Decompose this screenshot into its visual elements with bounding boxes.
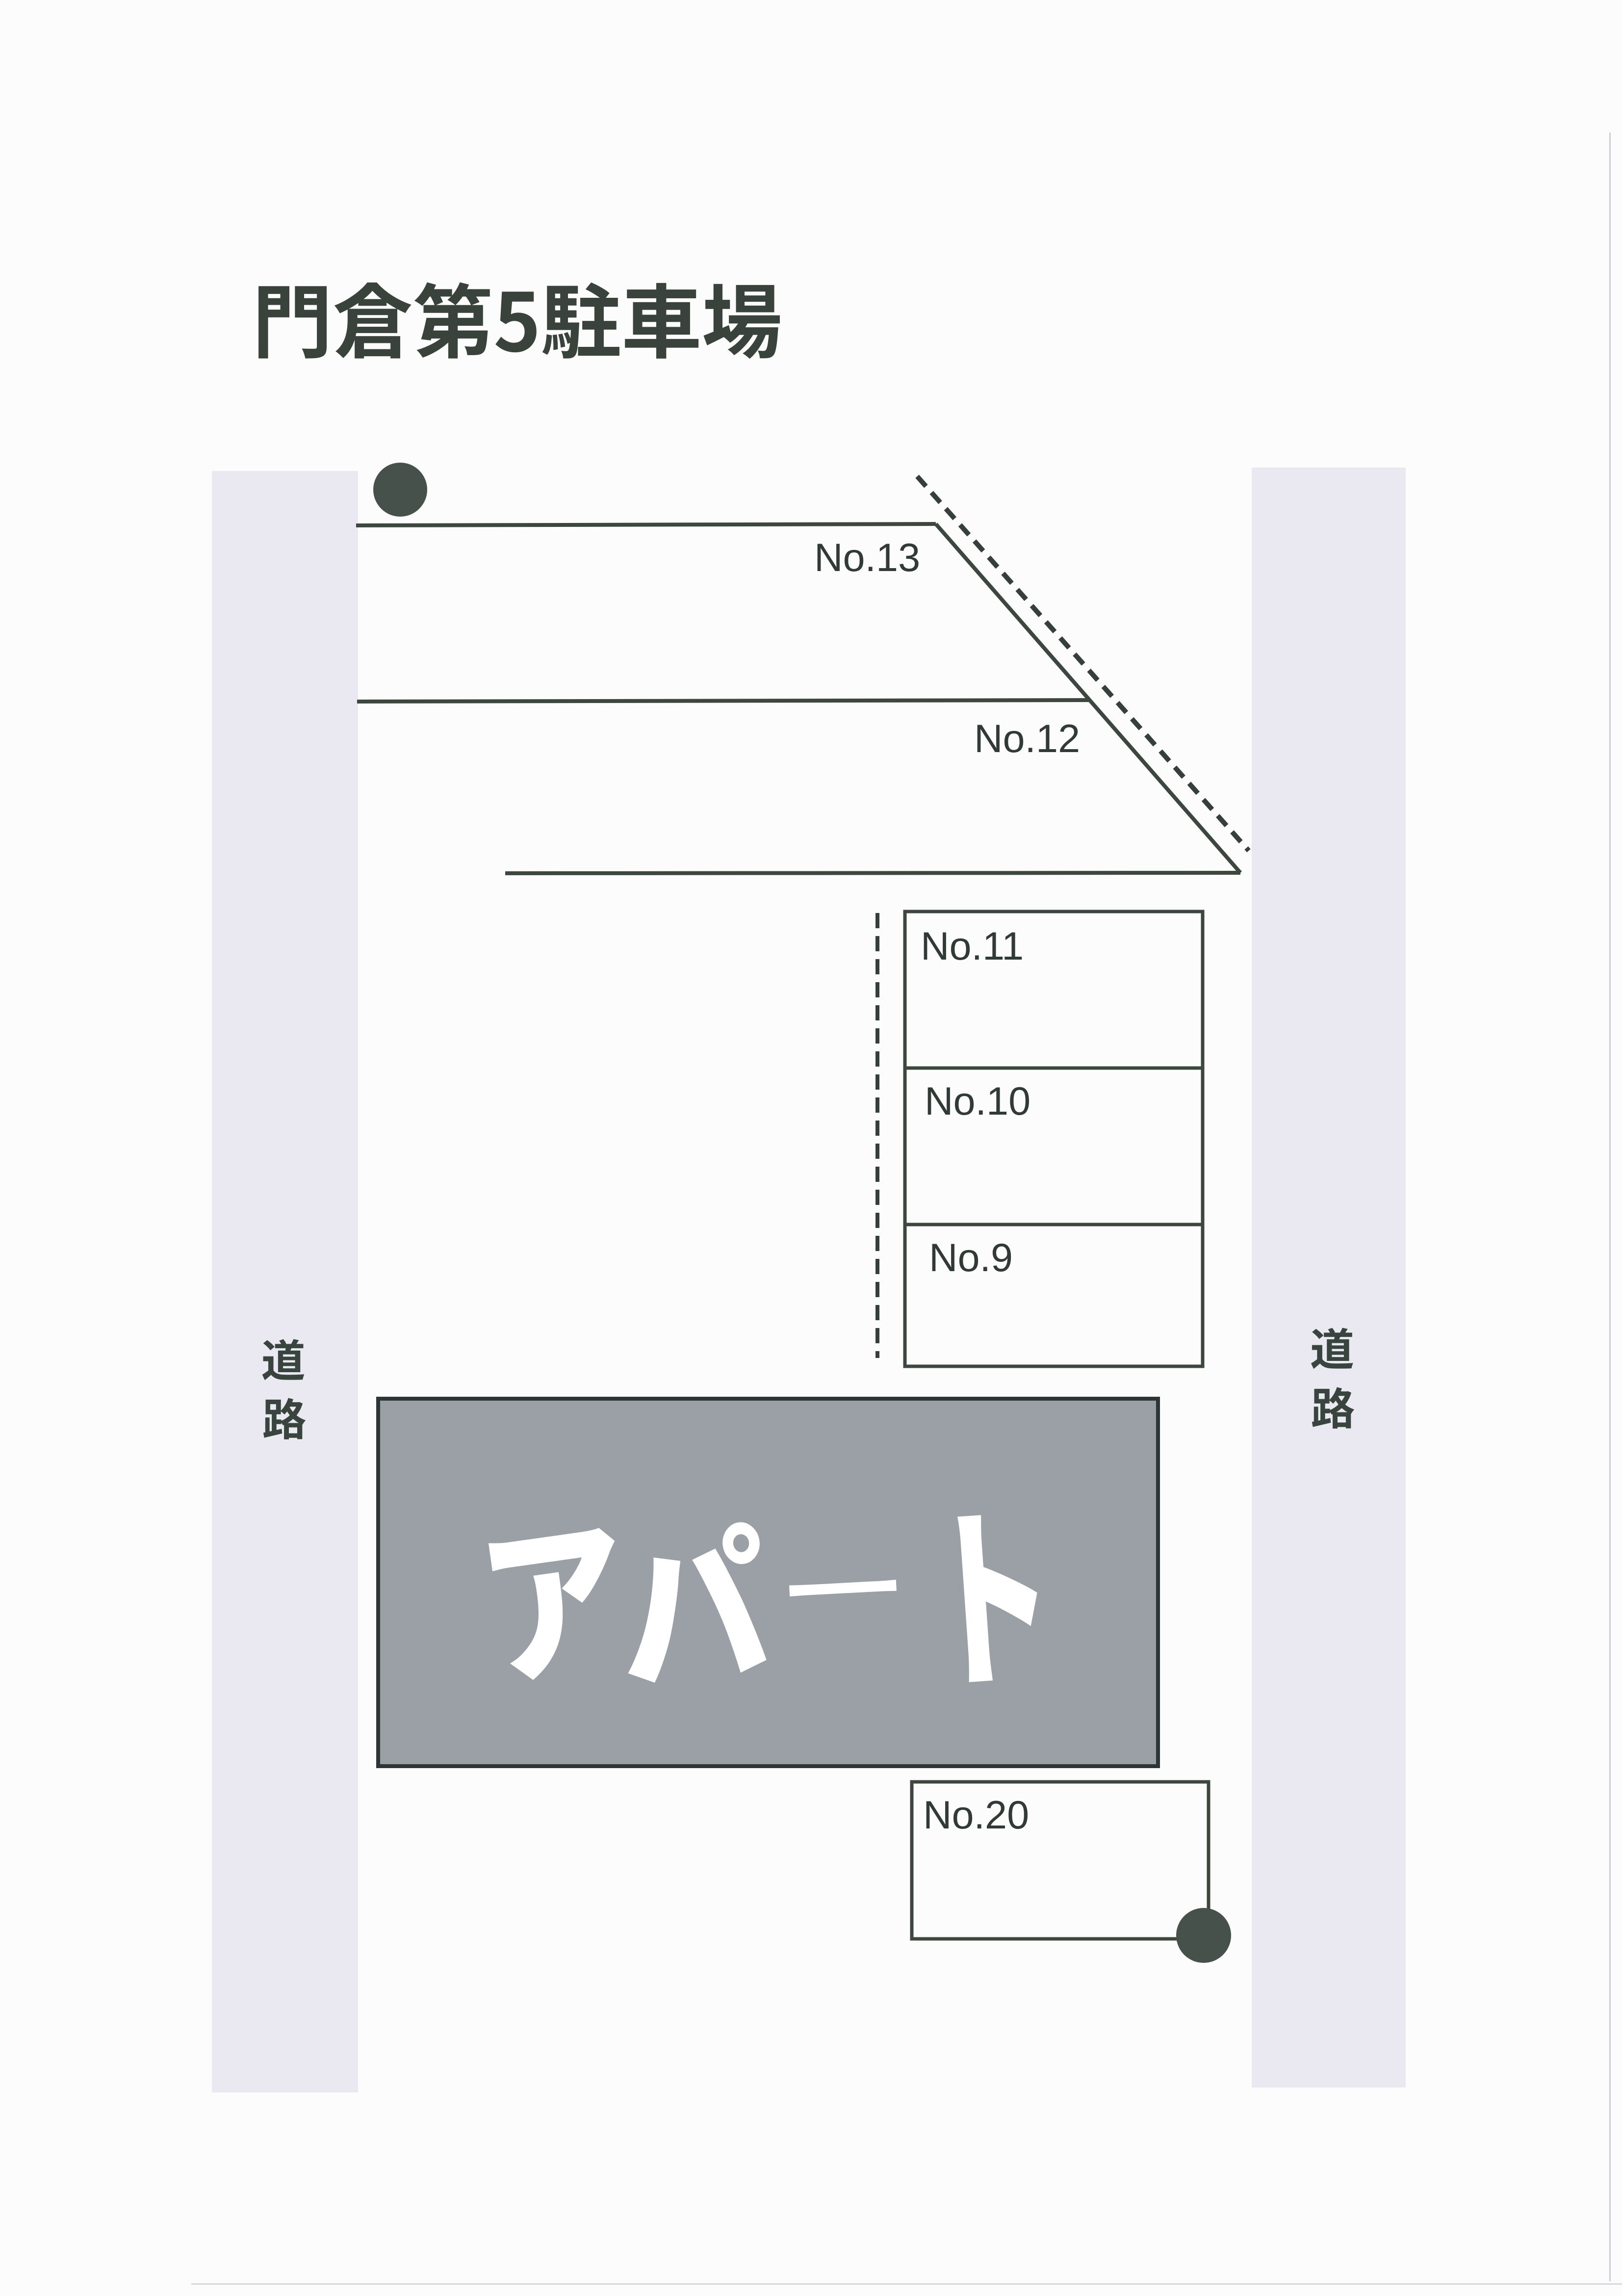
svg-text:No.12: No.12 xyxy=(974,717,1080,761)
svg-text:No.13: No.13 xyxy=(814,536,920,580)
svg-text:No.9: No.9 xyxy=(929,1236,1013,1280)
svg-text:No.20: No.20 xyxy=(923,1793,1029,1837)
svg-text:No.11: No.11 xyxy=(921,924,1024,968)
svg-text:No.10: No.10 xyxy=(925,1079,1030,1123)
